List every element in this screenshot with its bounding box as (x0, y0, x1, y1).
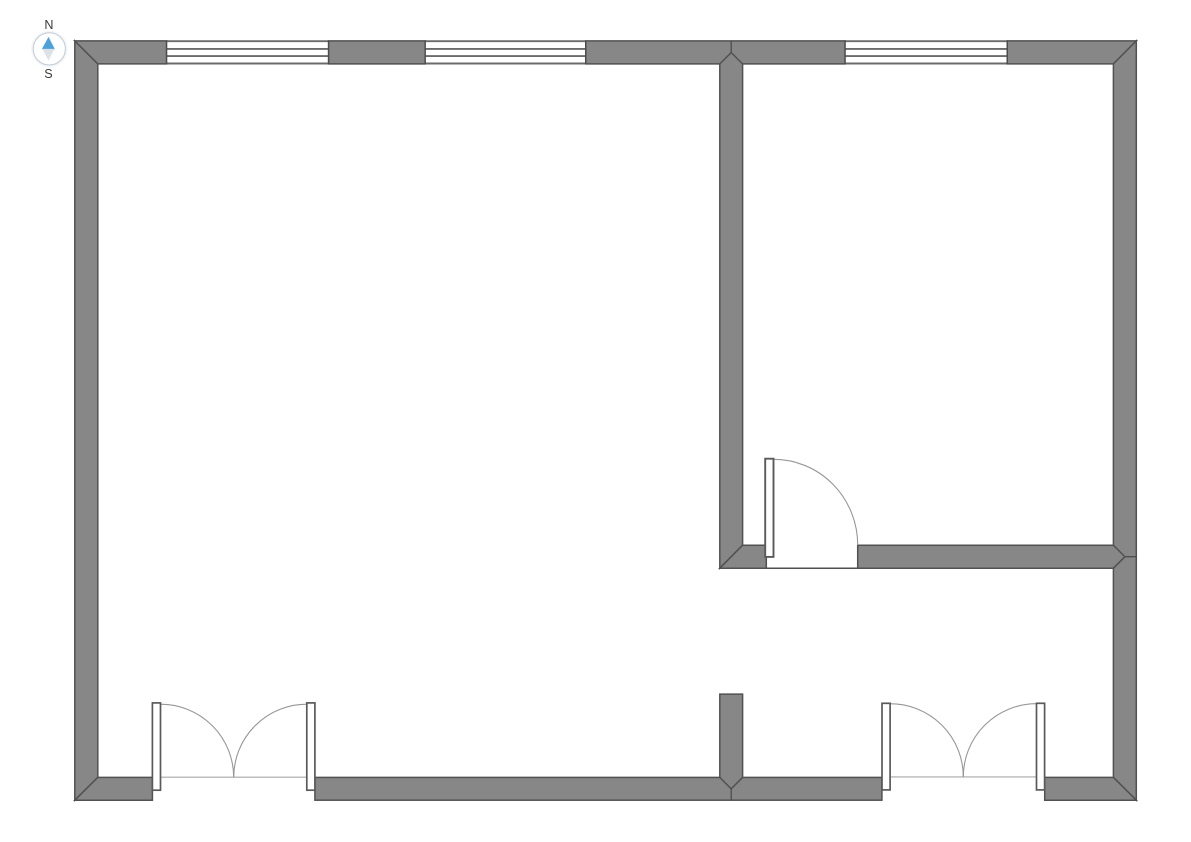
svg-text:N: N (44, 18, 53, 32)
svg-text:S: S (44, 67, 52, 81)
